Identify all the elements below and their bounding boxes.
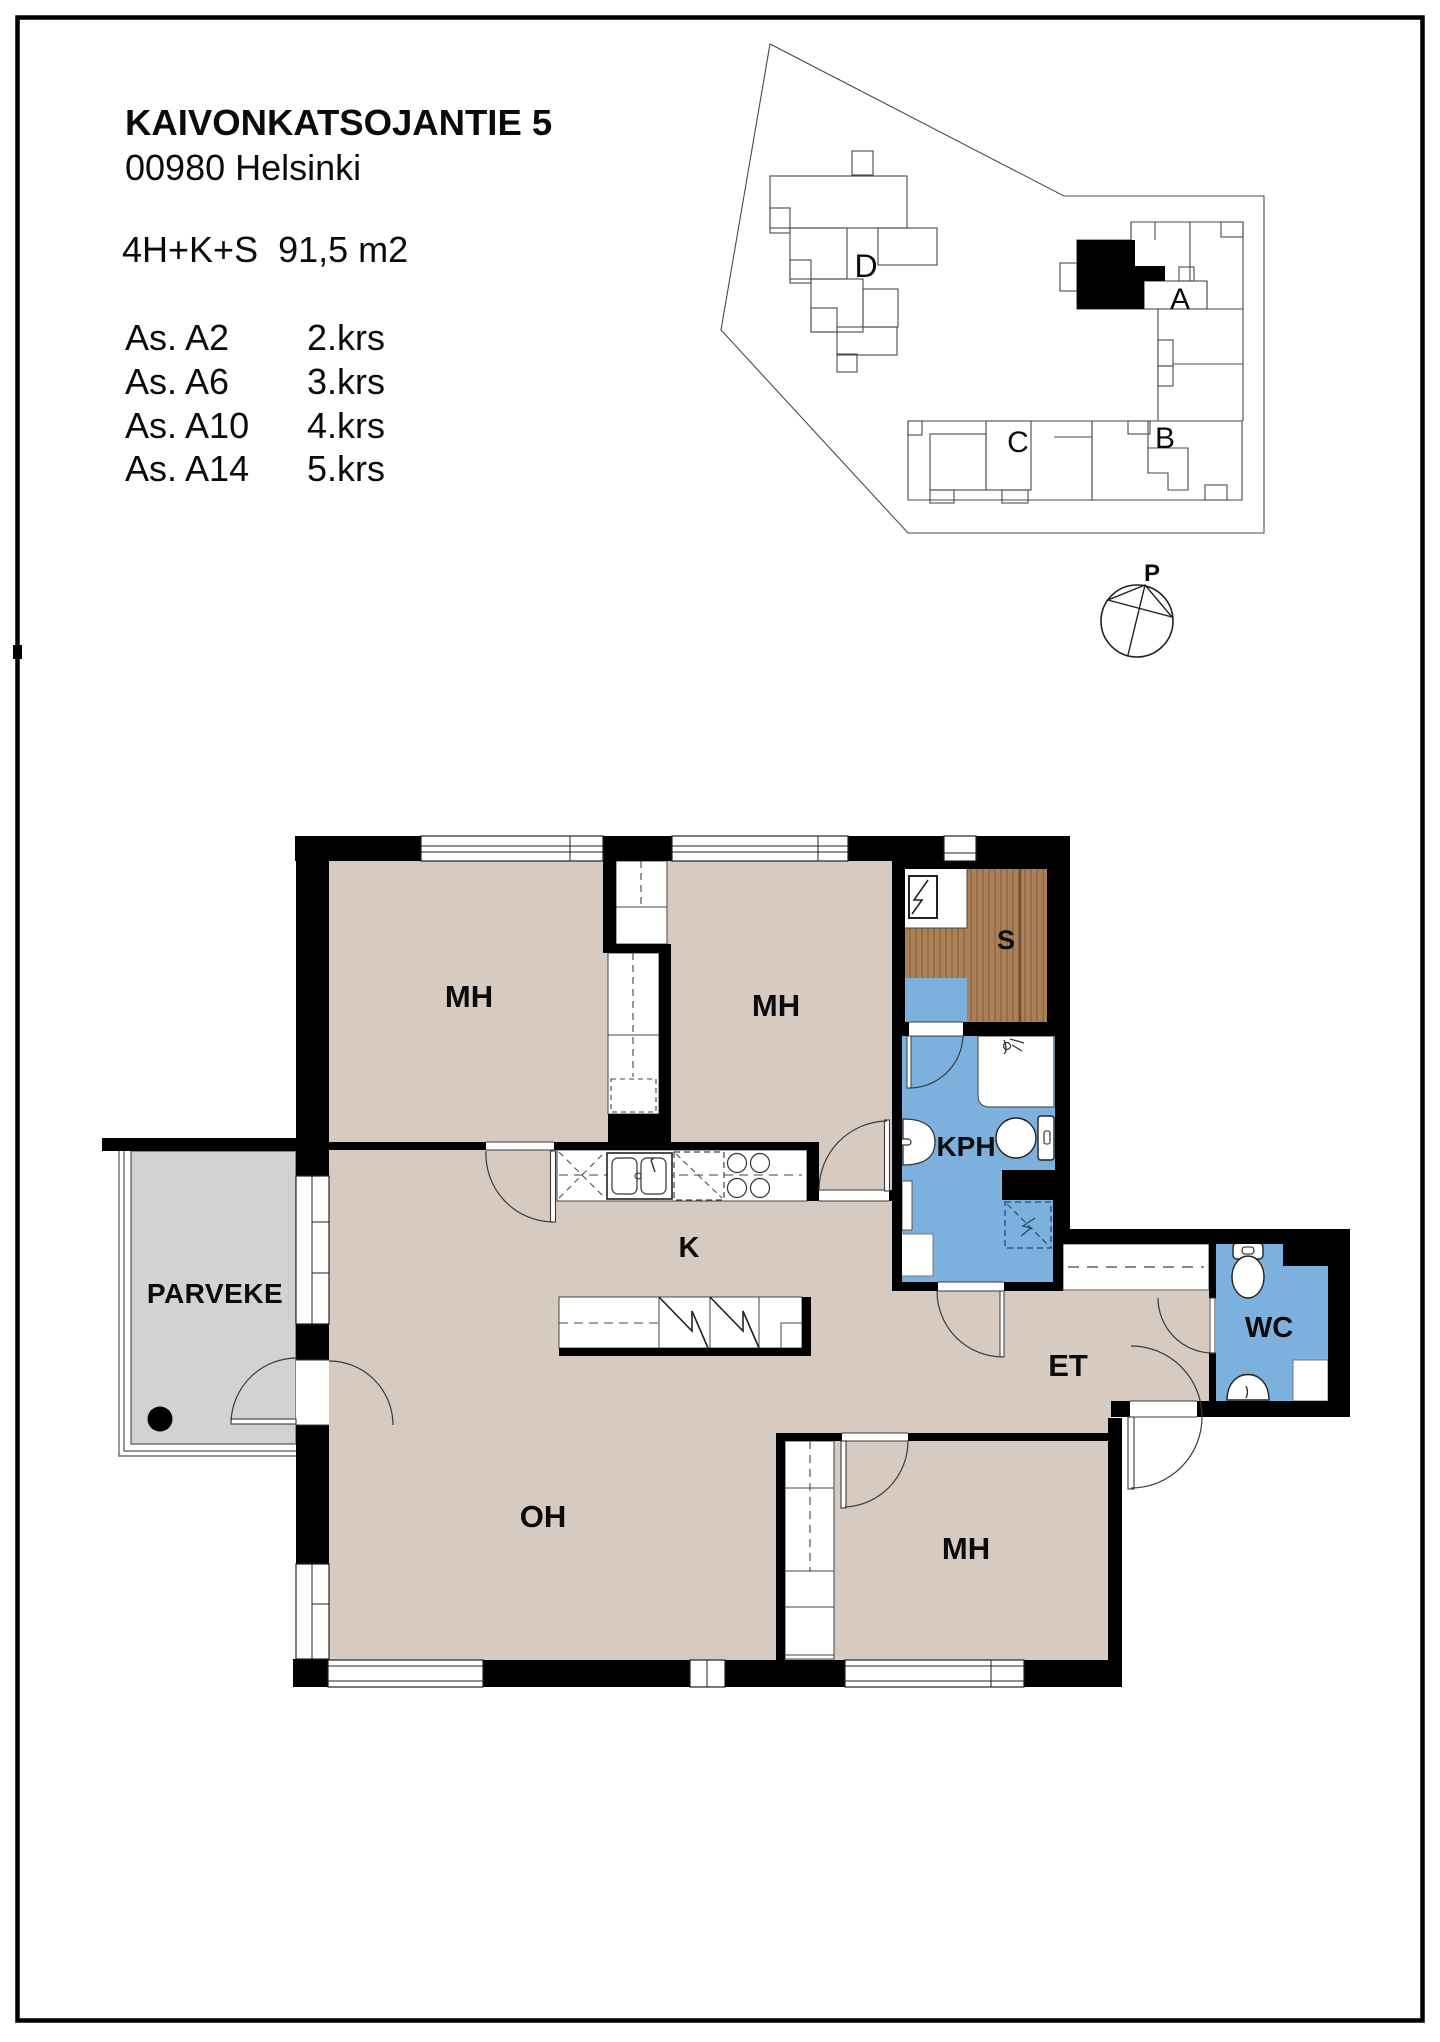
svg-text:As. A6: As. A6 — [125, 361, 229, 402]
svg-text:MH: MH — [445, 979, 493, 1014]
svg-text:OH: OH — [520, 1499, 567, 1534]
svg-text:5.krs: 5.krs — [307, 448, 385, 489]
svg-text:4H+K+S 91,5 m2: 4H+K+S 91,5 m2 — [122, 229, 408, 270]
svg-text:ET: ET — [1048, 1348, 1088, 1383]
svg-text:MH: MH — [942, 1531, 990, 1566]
svg-text:C: C — [1007, 426, 1029, 459]
svg-text:4.krs: 4.krs — [307, 405, 385, 446]
svg-text:A: A — [1170, 283, 1190, 316]
svg-text:KPH: KPH — [936, 1131, 995, 1162]
svg-text:D: D — [854, 248, 877, 284]
svg-text:As. A2: As. A2 — [125, 317, 229, 358]
svg-text:KAIVONKATSOJANTIE 5: KAIVONKATSOJANTIE 5 — [125, 102, 552, 143]
svg-text:PARVEKE: PARVEKE — [147, 1278, 283, 1309]
svg-text:K: K — [679, 1232, 700, 1264]
svg-text:2.krs: 2.krs — [307, 317, 385, 358]
svg-text:As. A14: As. A14 — [125, 448, 249, 489]
svg-text:00980 Helsinki: 00980 Helsinki — [125, 147, 361, 188]
svg-text:P: P — [1144, 560, 1160, 587]
svg-text:S: S — [997, 925, 1015, 955]
svg-text:MH: MH — [752, 988, 800, 1023]
svg-text:As. A10: As. A10 — [125, 405, 249, 446]
svg-text:B: B — [1155, 422, 1175, 455]
svg-text:WC: WC — [1245, 1312, 1293, 1344]
svg-text:3.krs: 3.krs — [307, 361, 385, 402]
